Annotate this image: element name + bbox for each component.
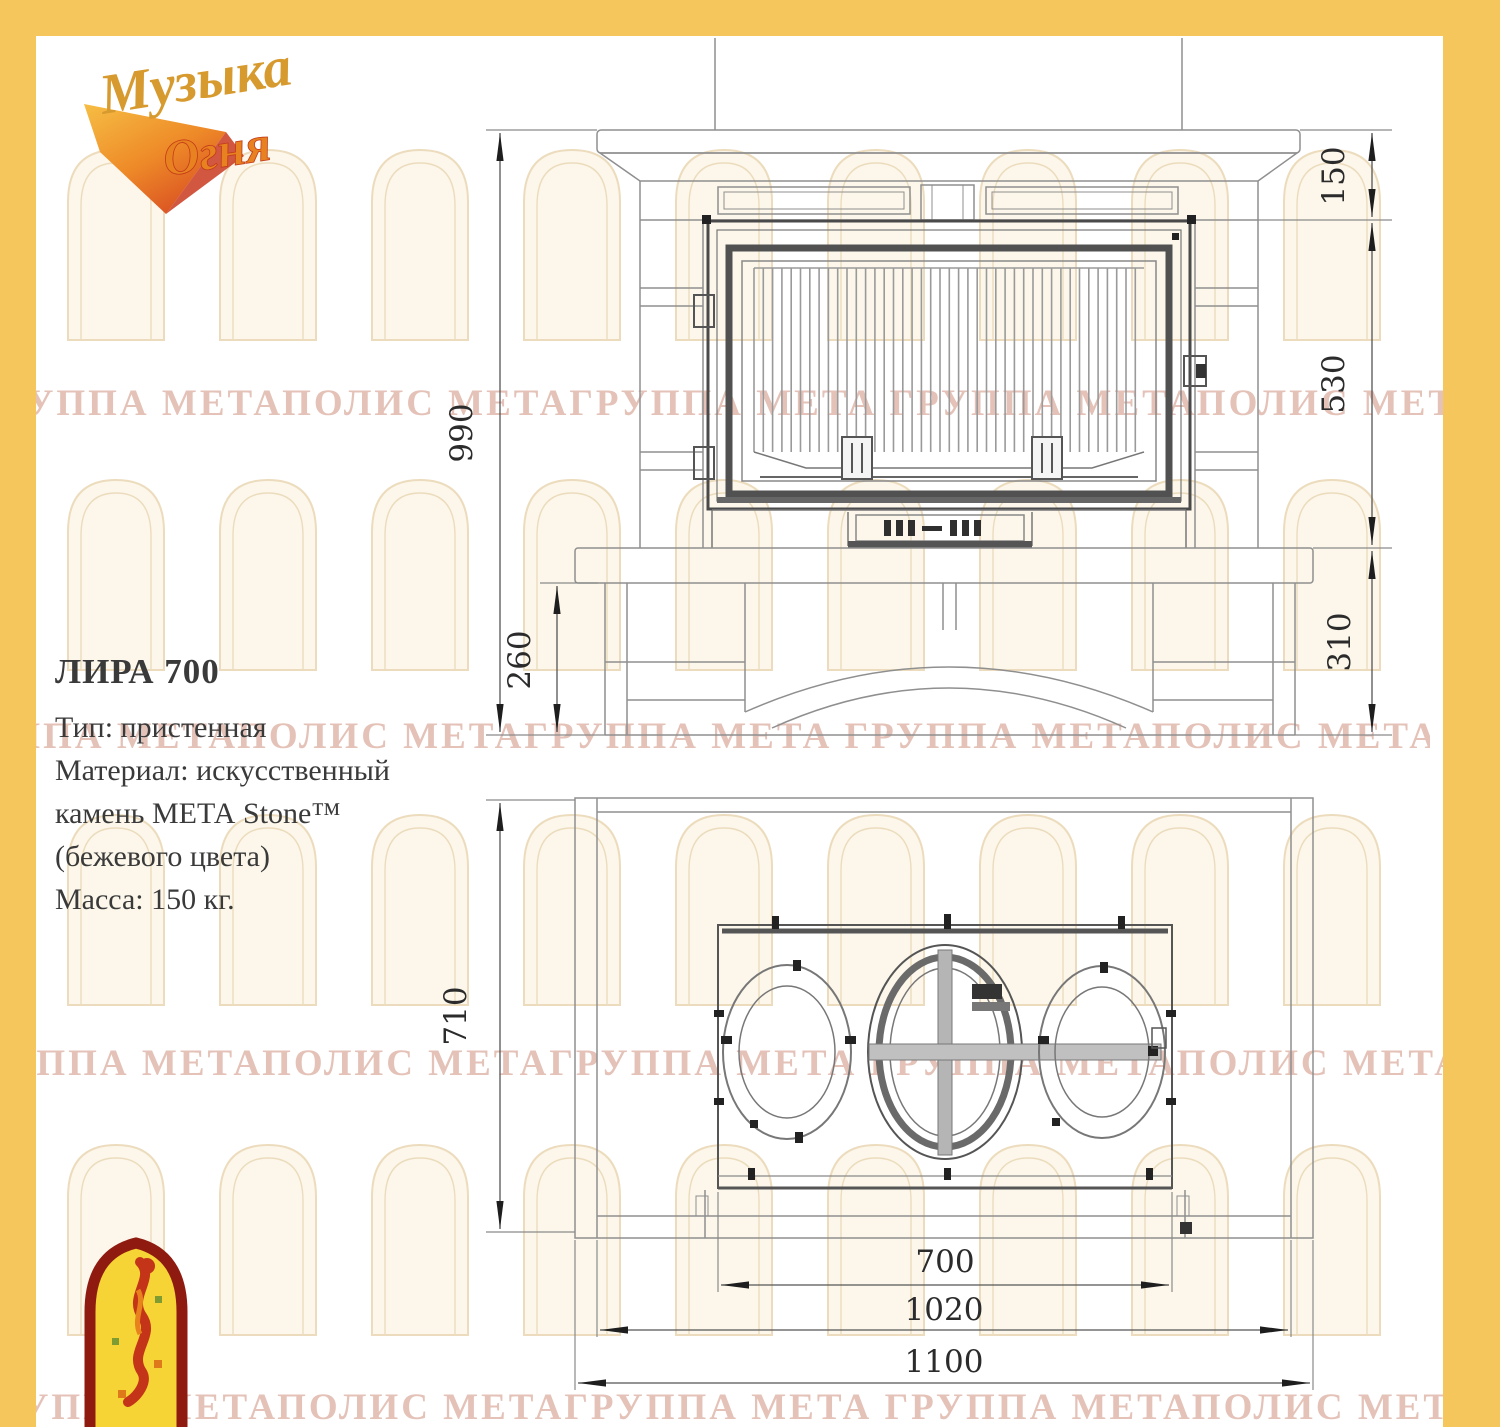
hinge-left-top bbox=[694, 295, 714, 327]
outlet-left bbox=[723, 965, 851, 1139]
page-border-left bbox=[0, 0, 36, 1427]
frieze-panel-left bbox=[718, 187, 910, 214]
product-name: ЛИРА 700 bbox=[55, 652, 515, 692]
dimension-labels: 990 260 150 530 310 710 700 1020 1100 bbox=[438, 146, 1358, 1380]
dim-total-height-label: 990 bbox=[444, 403, 480, 462]
product-material-1: Материал: искусственный bbox=[55, 749, 515, 792]
product-material-2: камень МЕТА Stone™ bbox=[55, 792, 515, 835]
page-border-right bbox=[1443, 0, 1500, 1427]
product-material-3: (бежевого цвета) bbox=[55, 835, 515, 878]
dim-firebox-height-label: 530 bbox=[1316, 354, 1352, 413]
dim-firebox-width-label: 700 bbox=[915, 1244, 974, 1280]
dim-hearth-height-label: 310 bbox=[1322, 612, 1358, 671]
page-border-top bbox=[0, 0, 1500, 36]
frieze-panel-right bbox=[986, 187, 1178, 214]
base-arch bbox=[745, 667, 1153, 712]
plan-outlets bbox=[721, 945, 1166, 1159]
arch-badge-logo bbox=[90, 1243, 182, 1427]
product-mass: Масса: 150 кг. bbox=[55, 878, 515, 921]
dim-mantel-height-label: 150 bbox=[1316, 146, 1352, 205]
dim-inner-width-label: 1020 bbox=[905, 1292, 984, 1328]
page: ГРУППА МЕТАПОЛИС МЕТАГРУППА МЕТА ГРУППА … bbox=[0, 0, 1500, 1427]
product-type: Тип: пристенная bbox=[55, 706, 515, 749]
product-info: ЛИРА 700 Тип: пристенная Материал: искус… bbox=[55, 652, 515, 921]
firebox-insert bbox=[694, 215, 1206, 548]
frieze-keystone bbox=[921, 185, 974, 220]
brand-word-1: Музыка bbox=[94, 34, 295, 127]
door-latch-right bbox=[1032, 437, 1062, 479]
mantel-crown bbox=[600, 153, 1297, 181]
door-glass-ribs bbox=[754, 268, 1135, 452]
hearth-slab bbox=[575, 548, 1313, 583]
dim-depth-label: 710 bbox=[438, 986, 474, 1045]
mantel-shelf bbox=[597, 130, 1300, 153]
hearth-and-base bbox=[575, 548, 1313, 735]
damper-bar-horizontal bbox=[869, 1044, 1161, 1060]
brand-logo: Музыка Огня bbox=[48, 34, 358, 234]
door-latch-left bbox=[842, 437, 872, 479]
dimension-lines bbox=[500, 133, 1372, 1383]
extension-lines bbox=[486, 130, 1392, 1390]
dim-total-width-label: 1100 bbox=[905, 1344, 984, 1380]
